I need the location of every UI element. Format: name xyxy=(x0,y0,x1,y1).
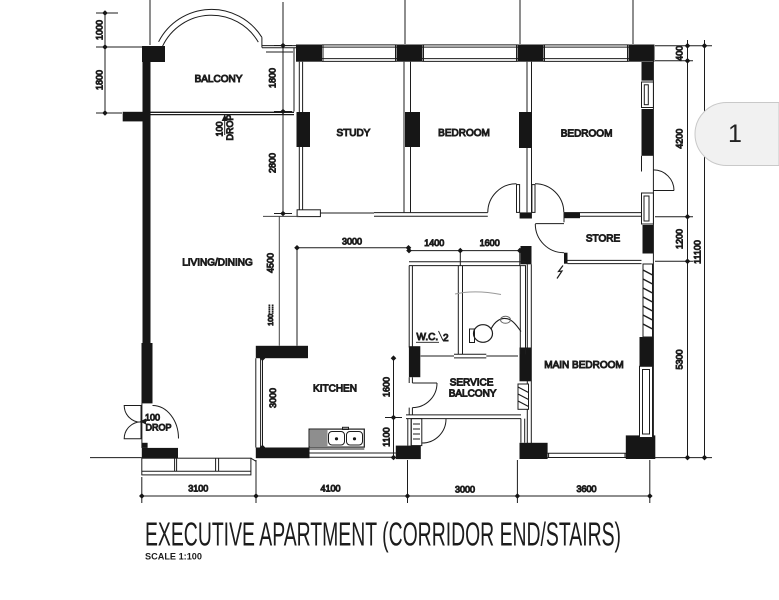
svg-text:KITCHEN: KITCHEN xyxy=(313,384,357,395)
svg-text:5300: 5300 xyxy=(675,349,685,369)
svg-text:1800: 1800 xyxy=(95,70,105,90)
svg-text:2: 2 xyxy=(443,333,449,344)
svg-text:1200: 1200 xyxy=(675,229,685,249)
svg-text:1000: 1000 xyxy=(95,20,105,40)
svg-text:11100: 11100 xyxy=(693,240,703,264)
svg-text:BEDROOM: BEDROOM xyxy=(561,129,613,140)
svg-text:400: 400 xyxy=(675,46,685,61)
svg-text:4500: 4500 xyxy=(265,253,275,273)
svg-text:W.C.: W.C. xyxy=(417,332,439,343)
svg-text:1400: 1400 xyxy=(424,238,444,248)
svg-text:1600: 1600 xyxy=(480,238,500,248)
svg-text:SCALE 1:100: SCALE 1:100 xyxy=(145,552,202,562)
svg-text:SERVICE: SERVICE xyxy=(450,378,494,389)
svg-text:100: 100 xyxy=(145,413,160,423)
svg-text:BEDROOM: BEDROOM xyxy=(438,128,490,139)
svg-text:3100: 3100 xyxy=(188,484,208,494)
svg-text:3000: 3000 xyxy=(268,388,278,408)
svg-text:STORE: STORE xyxy=(586,234,621,245)
svg-text:100:::::: 100::::: xyxy=(268,304,275,325)
svg-text:DROP: DROP xyxy=(225,114,235,140)
svg-text:BALCONY: BALCONY xyxy=(195,74,243,85)
svg-text:1100: 1100 xyxy=(382,427,392,446)
svg-text:1600: 1600 xyxy=(382,377,392,397)
svg-text:MAIN BEDROOM: MAIN BEDROOM xyxy=(544,360,623,371)
svg-text:STUDY: STUDY xyxy=(336,128,370,139)
svg-text:1800: 1800 xyxy=(268,68,278,88)
svg-text:1: 1 xyxy=(728,120,742,148)
svg-text:100: 100 xyxy=(215,121,225,136)
svg-text:DROP: DROP xyxy=(146,423,172,433)
svg-text:LIVING/DINING: LIVING/DINING xyxy=(182,258,253,269)
svg-text:3000: 3000 xyxy=(342,237,362,247)
svg-text:4200: 4200 xyxy=(675,129,685,149)
svg-text:2800: 2800 xyxy=(268,153,278,173)
svg-text:3000: 3000 xyxy=(455,485,475,495)
svg-text:EXECUTIVE APARTMENT (CORRIDOR: EXECUTIVE APARTMENT (CORRIDOR END/STAIRS… xyxy=(145,516,621,553)
svg-text:4100: 4100 xyxy=(320,484,340,494)
svg-text:BALCONY: BALCONY xyxy=(449,388,497,399)
svg-text:3600: 3600 xyxy=(576,484,596,494)
